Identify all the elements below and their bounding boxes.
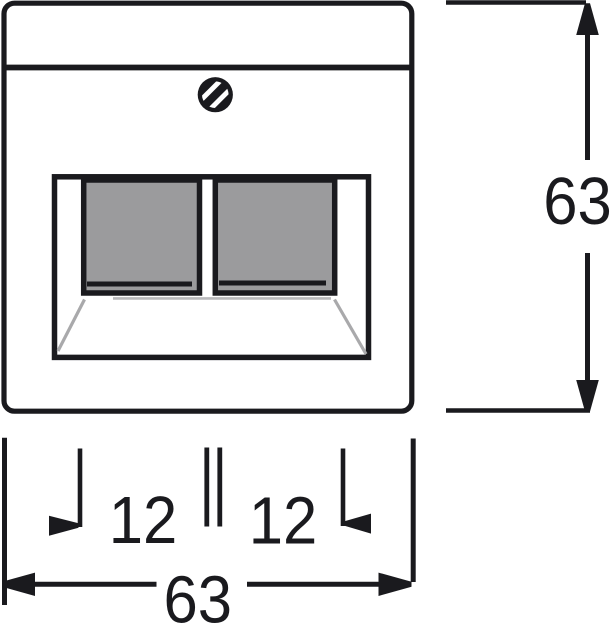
svg-text:63: 63 (164, 562, 233, 637)
svg-text:63: 63 (543, 163, 612, 238)
svg-text:12: 12 (249, 483, 318, 558)
svg-text:12: 12 (109, 482, 178, 557)
